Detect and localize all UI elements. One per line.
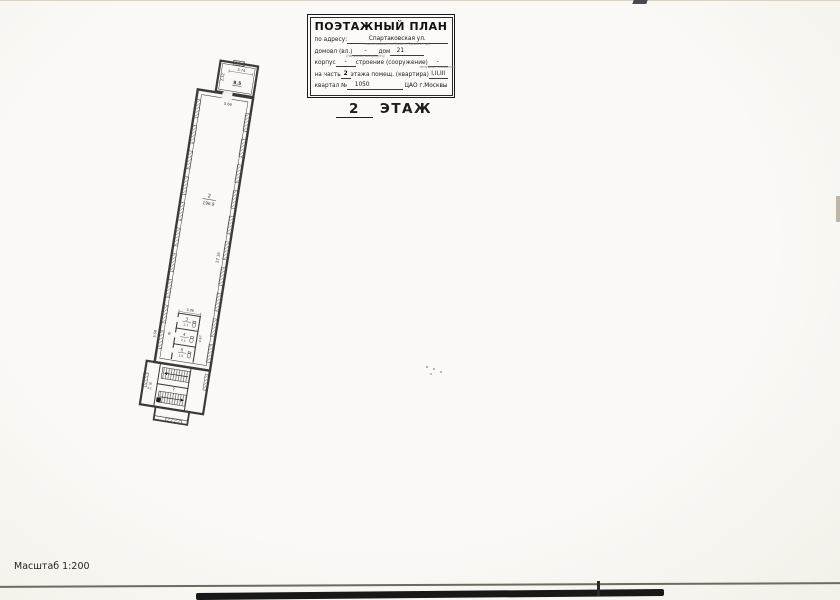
premises-value-field: I,II,III: [429, 71, 448, 79]
room-2-number-label: 2: [207, 193, 211, 199]
dim-service-left: 5.58: [152, 330, 157, 338]
building-label: корпус: [315, 60, 336, 67]
floor-caption: 2ЭТАЖ: [336, 101, 432, 118]
house-number-field: 21: [390, 48, 410, 56]
cistern-icon: [188, 352, 191, 354]
title-row-homestead: домовл (вл.) - (ненужное зачеркнуть) дом…: [315, 48, 448, 56]
dim-service-right: 4.67: [198, 335, 203, 343]
title-row-building: корпус - строение (сооружение) - ненужно…: [315, 59, 448, 67]
window-hatch: [203, 374, 210, 391]
room-2-area-label: 196.9: [202, 200, 215, 207]
district-label: ЦАО г.Москвы: [403, 83, 448, 90]
floor-number: 2: [336, 101, 373, 118]
room-5-area-label: 1.5: [178, 353, 183, 358]
floor-plan-drawing: 3.74 2.32 8.5: [125, 47, 285, 447]
part-value: 2: [344, 71, 348, 77]
address-value-field: Спартаковская ул. наименование ул. (прос…: [347, 36, 447, 44]
room-6-number-label: 6: [168, 331, 172, 336]
paper-edge-line: [0, 582, 840, 587]
room-10-area-label: 4.1: [147, 386, 152, 391]
address-sub-caption: наименование ул. (просп., бульв. и т.д.): [364, 43, 430, 46]
room-4-number-label: 4: [183, 332, 187, 337]
house-number-value: 21: [397, 48, 404, 54]
building-value: -: [345, 59, 347, 65]
main-hall: 5.66 2 196.9 27 16: [154, 88, 253, 371]
room-7-number-label: 7: [172, 387, 176, 392]
quarter-value-field: 1050: [347, 82, 377, 90]
scale-label: Масштаб 1:200: [14, 561, 90, 572]
title-block-inner-border: ПОЭТАЖНЫЙ ПЛАН по адресу: Спартаковская …: [310, 17, 453, 96]
scanned-page: ПОЭТАЖНЫЙ ПЛАН по адресу: Спартаковская …: [0, 0, 840, 600]
quarter-value: 1050: [355, 82, 370, 88]
homestead-sub-caption: (ненужное зачеркнуть): [346, 55, 384, 58]
door-opening: [172, 348, 174, 353]
room-3-area-label: 2.1: [183, 323, 188, 328]
entrance-porch: [154, 407, 190, 426]
dim-hall-height: 27 16: [214, 251, 221, 263]
right-wall-piers: [207, 113, 251, 363]
cistern-icon: [193, 321, 196, 323]
room-3-number-label: 3: [185, 316, 189, 321]
title-block: ПОЭТАЖНЫЙ ПЛАН по адресу: Спартаковская …: [307, 14, 455, 98]
homestead-blank-field: [410, 49, 424, 56]
shaft-solid-marker: [156, 397, 161, 402]
scanner-background-bar: [196, 589, 664, 600]
dim-top-room-height: 2.32: [220, 73, 225, 82]
room-4-area-label: 2.1: [181, 338, 186, 343]
dim-hall-top: 5.66: [224, 102, 233, 107]
floor-word: ЭТАЖ: [380, 101, 432, 117]
title-row-address: по адресу: Спартаковская ул. наименовани…: [315, 36, 448, 44]
scan-edge-top: [0, 0, 840, 1]
cistern-icon: [190, 336, 193, 338]
scan-mark-top-right: [632, 0, 647, 4]
structure-value-field: - ненужное зачеркнуть: [428, 59, 448, 67]
door-opening: [176, 317, 178, 322]
structure-label: строение (сооружение): [356, 60, 428, 67]
scan-mark-bottom: [597, 581, 600, 596]
homestead-value-field: - (ненужное зачеркнуть): [352, 48, 378, 56]
premises-label: этажа помещ. (квартира): [351, 72, 429, 79]
structure-sub-caption: ненужное зачеркнуть: [420, 66, 456, 69]
title-row-floor-part: на часть 2 этажа помещ. (квартира) I,II,…: [315, 71, 448, 79]
part-label: на часть: [315, 72, 341, 79]
building-value-field: -: [336, 59, 356, 67]
dim-service-width: 3.06: [186, 308, 194, 313]
quarter-label: квартал №: [315, 83, 348, 90]
porch-hatch: [165, 418, 181, 425]
room-5-number-label: 5: [180, 347, 184, 352]
title-row-quarter: квартал № 1050 ЦАО г.Москвы: [315, 82, 448, 90]
stair-block: 7 10 4.1: [139, 361, 211, 415]
scan-mark-right-edge: [836, 196, 840, 222]
part-value-field: 2: [341, 71, 351, 79]
quarter-blank-field: [377, 83, 402, 90]
address-label: по адресу:: [315, 37, 348, 44]
scan-speckles: [426, 366, 428, 368]
door-opening: [174, 332, 176, 337]
premises-value: I,II,III: [431, 71, 445, 77]
title-block-title: ПОЭТАЖНЫЙ ПЛАН: [311, 20, 452, 33]
